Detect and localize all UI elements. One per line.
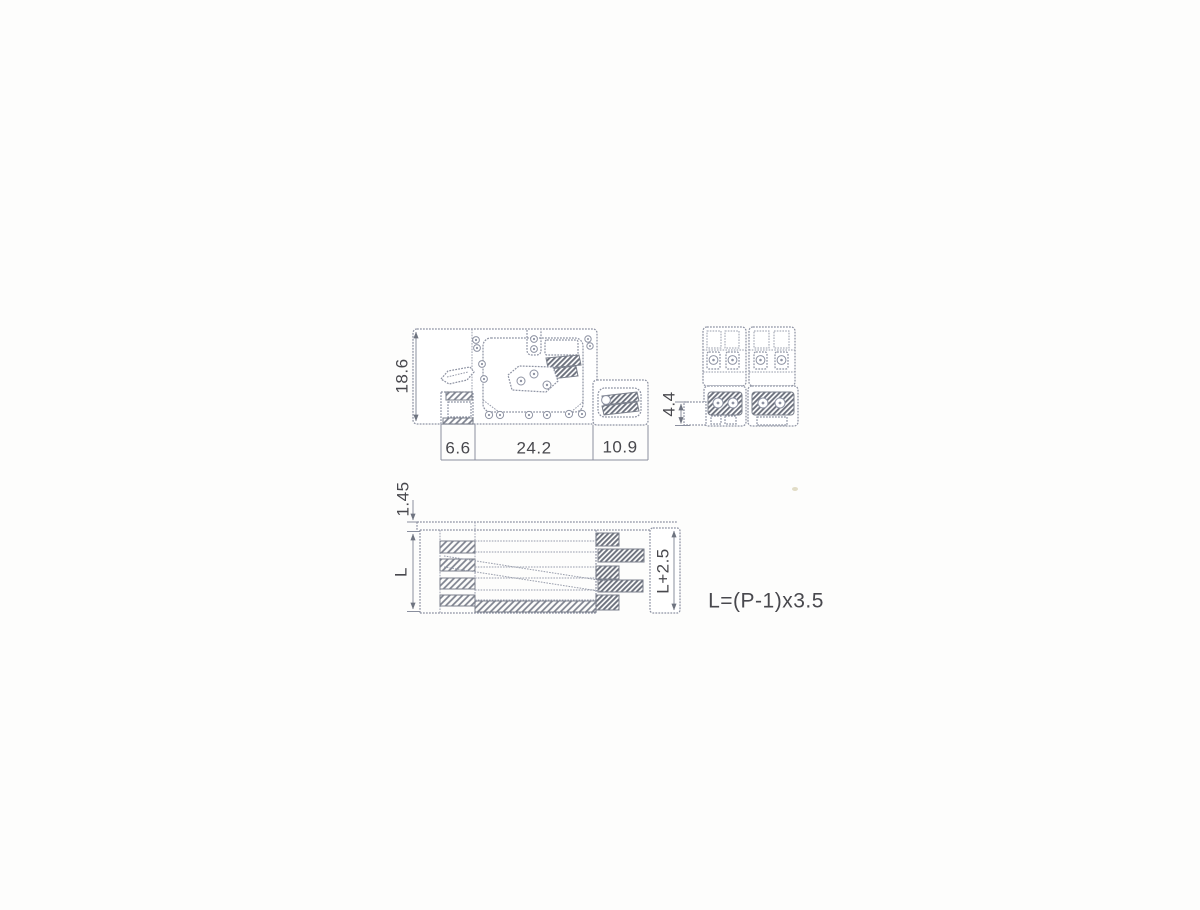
dim-widths: 6.6 24.2 10.9 (441, 424, 648, 460)
dim-width-left-label: 6.6 (445, 439, 470, 458)
technical-drawing-canvas: 18.6 6.6 24.2 10.9 (0, 0, 1200, 910)
pin-assembly (593, 380, 648, 425)
dim-pin-height-label: 4.4 (660, 391, 679, 416)
dim-height-label: 18.6 (393, 358, 412, 393)
front-view: 4.4 (660, 327, 799, 426)
dim-flange: 1.45 (394, 481, 420, 522)
dim-total-length: L+2.5 (650, 528, 680, 613)
bottom-view: 1.45 L L+2.5 (392, 481, 681, 613)
dim-total-length-label: L+2.5 (654, 548, 673, 594)
front-module-a-bottom (704, 386, 746, 426)
left-contact-bands (440, 541, 475, 606)
dim-width-center-label: 24.2 (516, 439, 551, 458)
front-module-b-top (749, 327, 795, 386)
front-module-b-bottom (748, 386, 798, 426)
pitch-formula-label: L=(P-1)x3.5 (708, 590, 824, 613)
front-module-a-top (703, 327, 746, 386)
dim-width-right-label: 10.9 (602, 438, 637, 457)
solder-pins (596, 533, 644, 610)
pin-standoff-box (684, 402, 706, 425)
drawing-page: 18.6 6.6 24.2 10.9 (0, 0, 1200, 910)
bottom-hatch-band (475, 601, 596, 612)
scan-artifact (792, 487, 798, 491)
wire-entry-box (441, 392, 473, 424)
dim-length: L (392, 532, 421, 612)
dim-length-label: L (392, 567, 411, 577)
side-view: 18.6 6.6 24.2 10.9 (393, 329, 649, 460)
dim-flange-label: 1.45 (394, 481, 413, 516)
